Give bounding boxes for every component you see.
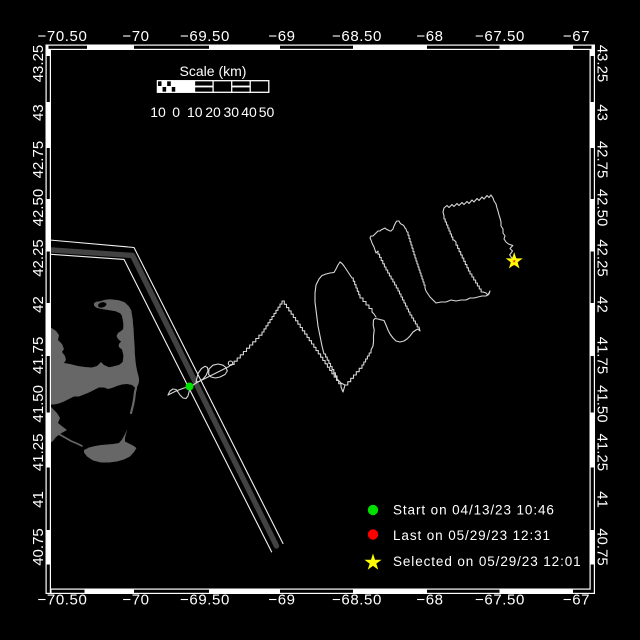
svg-text:50: 50 — [259, 104, 275, 120]
svg-text:41.75: 41.75 — [30, 337, 47, 375]
svg-text:−67.50: −67.50 — [475, 28, 525, 45]
svg-text:43: 43 — [30, 104, 47, 121]
svg-text:−67: −67 — [563, 592, 590, 609]
svg-text:−67: −67 — [563, 28, 590, 45]
svg-text:−69: −69 — [268, 28, 295, 45]
svg-text:41: 41 — [30, 491, 47, 508]
svg-text:42: 42 — [594, 296, 611, 313]
svg-text:−69: −69 — [268, 592, 295, 609]
svg-text:41: 41 — [594, 491, 611, 508]
svg-text:41.50: 41.50 — [594, 385, 611, 423]
svg-text:43.25: 43.25 — [594, 45, 611, 83]
svg-text:43.25: 43.25 — [30, 45, 47, 83]
svg-text:40.75: 40.75 — [594, 528, 611, 566]
svg-text:40.75: 40.75 — [30, 528, 47, 566]
svg-text:10: 10 — [150, 104, 166, 120]
svg-text:20: 20 — [205, 104, 221, 120]
svg-text:−69.50: −69.50 — [180, 592, 230, 609]
svg-text:41.25: 41.25 — [30, 434, 47, 472]
svg-text:−68.50: −68.50 — [332, 592, 382, 609]
svg-text:10: 10 — [187, 104, 203, 120]
svg-text:−70: −70 — [122, 592, 149, 609]
svg-text:Selected on 05/29/23 12:01: Selected on 05/29/23 12:01 — [393, 554, 582, 569]
svg-text:43: 43 — [594, 104, 611, 121]
svg-text:−68: −68 — [416, 592, 443, 609]
svg-text:−67.50: −67.50 — [475, 592, 525, 609]
svg-text:−70: −70 — [122, 28, 149, 45]
svg-text:−68: −68 — [416, 28, 443, 45]
svg-text:41.50: 41.50 — [30, 385, 47, 423]
svg-text:Start on 04/13/23 10:46: Start on 04/13/23 10:46 — [393, 503, 555, 518]
svg-text:−70.50: −70.50 — [38, 592, 88, 609]
svg-text:42.25: 42.25 — [30, 239, 47, 277]
svg-text:−68.50: −68.50 — [332, 28, 382, 45]
svg-text:42: 42 — [30, 296, 47, 313]
svg-text:42.75: 42.75 — [594, 141, 611, 179]
svg-text:41.75: 41.75 — [594, 337, 611, 375]
svg-text:Scale (km): Scale (km) — [180, 63, 247, 79]
svg-text:41.25: 41.25 — [594, 434, 611, 472]
svg-text:30: 30 — [224, 104, 240, 120]
svg-text:−69.50: −69.50 — [180, 28, 230, 45]
svg-text:0: 0 — [172, 104, 180, 120]
svg-text:40: 40 — [241, 104, 257, 120]
svg-text:42.50: 42.50 — [30, 189, 47, 227]
svg-text:42.50: 42.50 — [594, 189, 611, 227]
svg-text:−70.50: −70.50 — [38, 28, 88, 45]
svg-text:42.25: 42.25 — [594, 239, 611, 277]
svg-text:42.75: 42.75 — [30, 141, 47, 179]
svg-text:Last on 05/29/23 12:31: Last on 05/29/23 12:31 — [393, 528, 551, 543]
